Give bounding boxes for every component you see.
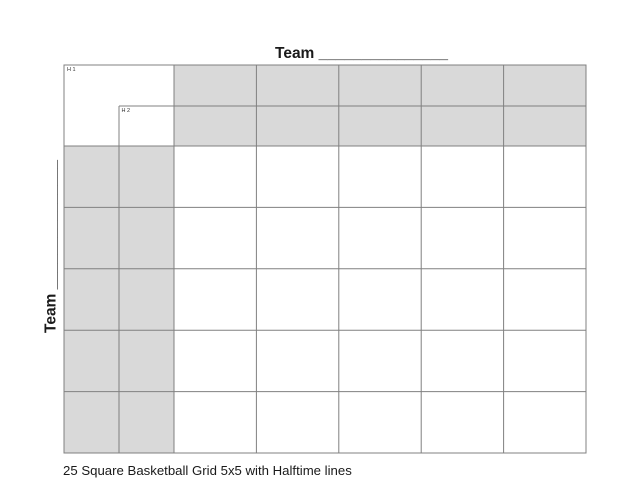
svg-text:H 2: H 2	[122, 108, 131, 114]
svg-text:H 1: H 1	[67, 67, 76, 73]
svg-text:Team _______________: Team _______________	[275, 45, 448, 62]
svg-text:Team _______________: Team _______________	[43, 160, 60, 333]
svg-text:25 Square Basketball Grid 5x5: 25 Square Basketball Grid 5x5 with Halft…	[63, 463, 352, 478]
